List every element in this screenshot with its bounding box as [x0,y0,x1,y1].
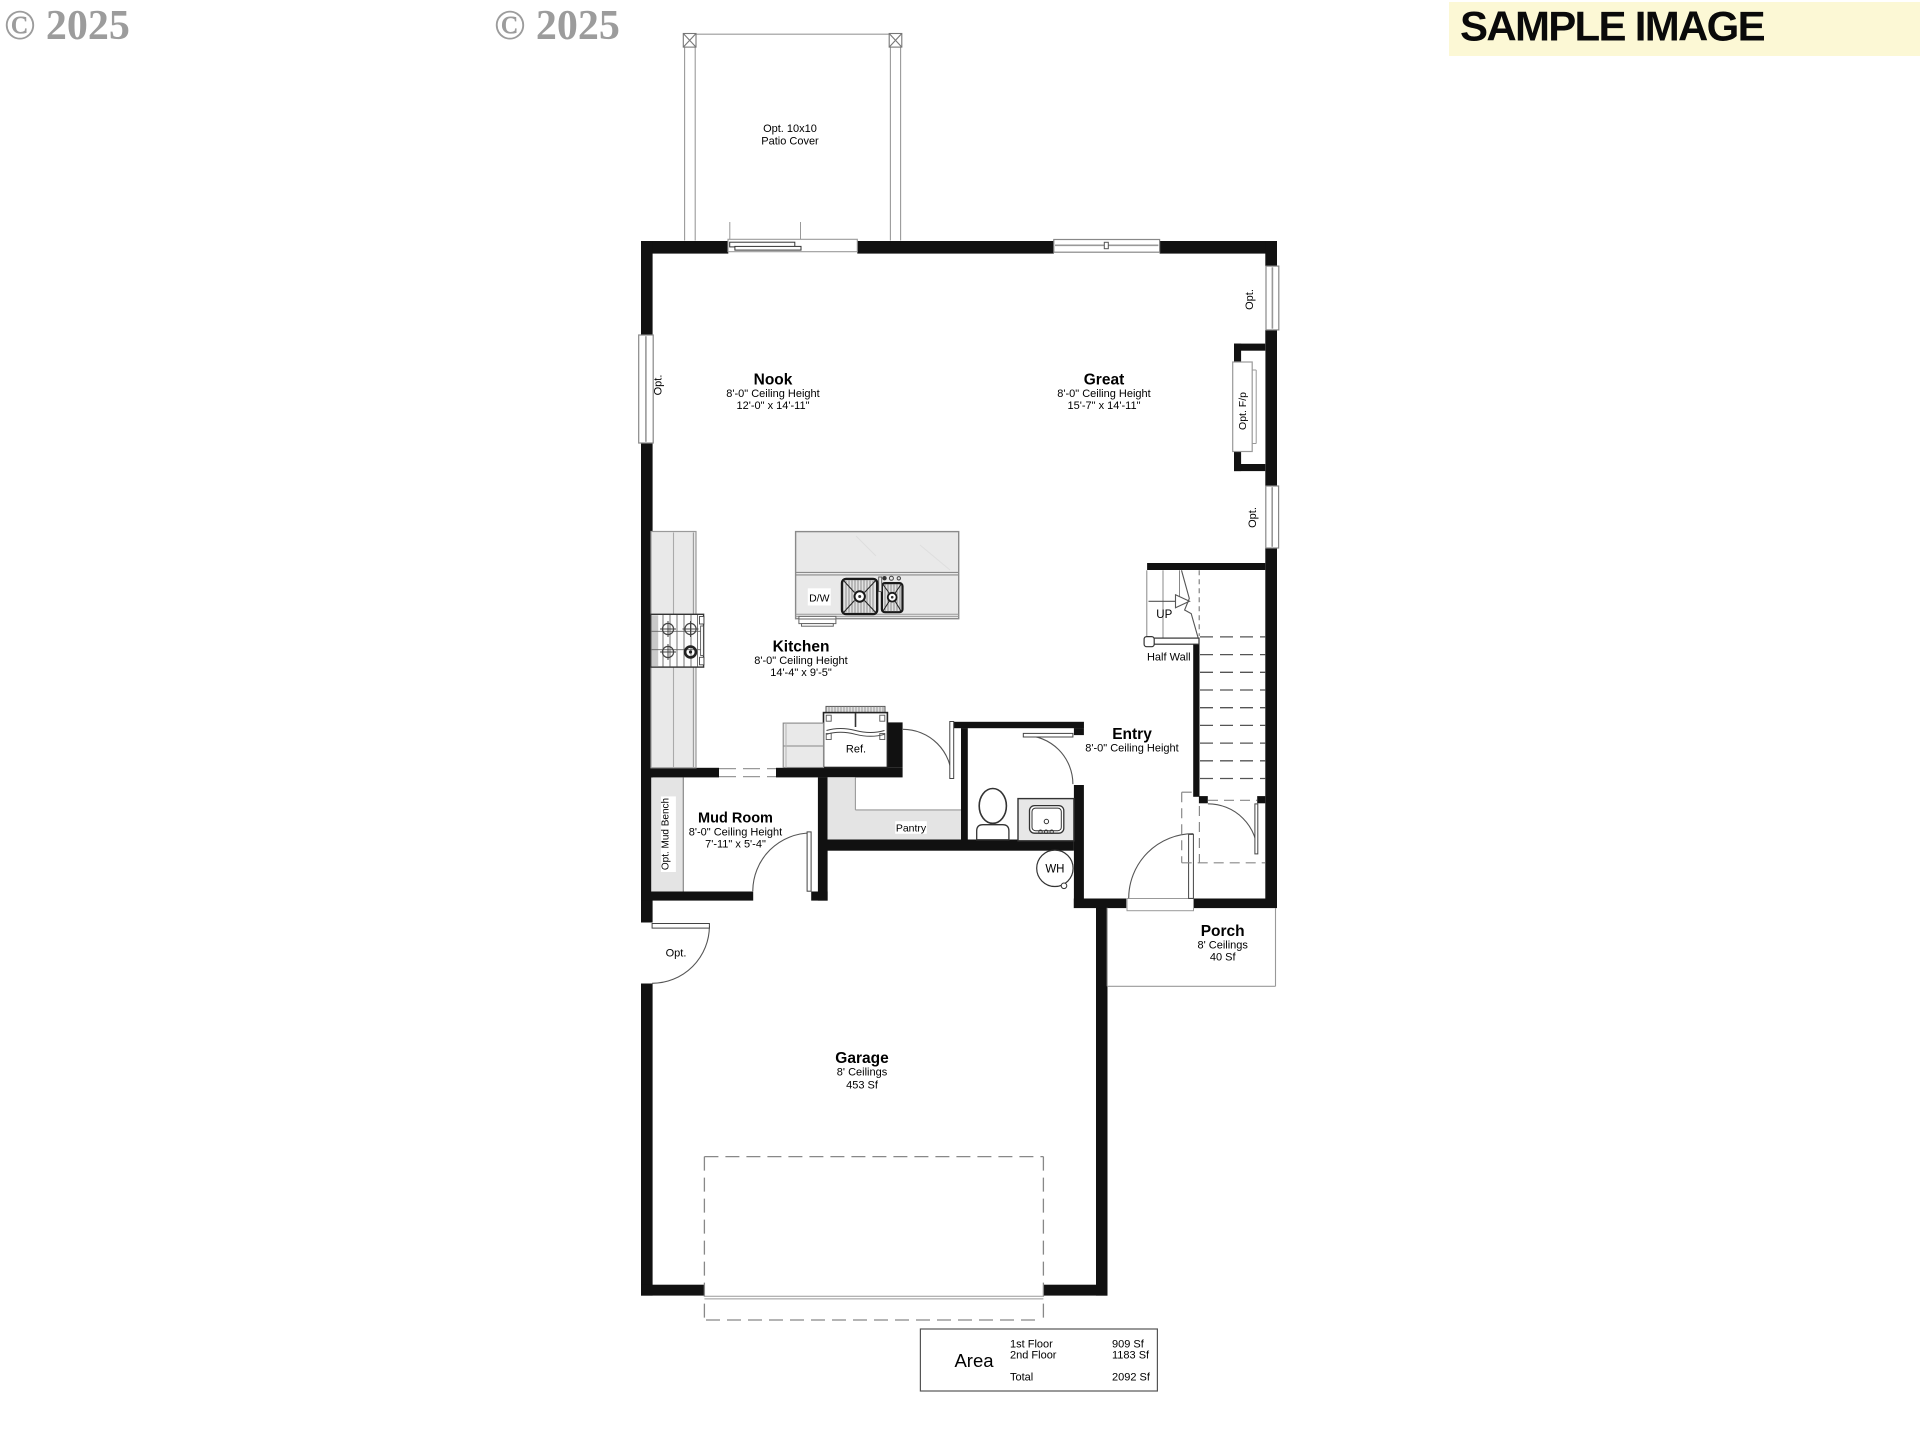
svg-text:Area: Area [954,1350,994,1371]
svg-text:8'-0" Ceiling Height: 8'-0" Ceiling Height [1085,743,1178,755]
svg-text:Opt. F/p: Opt. F/p [1237,392,1249,430]
svg-text:2nd Floor: 2nd Floor [1010,1350,1057,1362]
svg-text:Ref.: Ref. [846,744,866,756]
svg-text:8' Ceilings: 8' Ceilings [1197,940,1248,952]
svg-text:8'-0" Ceiling Height: 8'-0" Ceiling Height [726,388,819,400]
svg-text:Opt.: Opt. [666,948,687,960]
svg-text:1183 Sf: 1183 Sf [1112,1350,1150,1362]
svg-text:Opt. Mud Bench: Opt. Mud Bench [661,798,672,870]
svg-text:D/W: D/W [809,592,830,604]
svg-text:Patio Cover: Patio Cover [761,136,819,148]
svg-text:8' Ceilings: 8' Ceilings [837,1067,888,1079]
svg-text:7'-11" x 5'-4": 7'-11" x 5'-4" [705,839,766,851]
svg-text:Opt. 10x10: Opt. 10x10 [763,123,817,135]
svg-text:15'-7" x 14'-11": 15'-7" x 14'-11" [1068,400,1141,412]
svg-text:Total: Total [1010,1371,1033,1383]
svg-text:© 2025: © 2025 [494,3,620,49]
svg-text:Mud Room: Mud Room [698,811,773,827]
svg-text:Opt.: Opt. [1244,289,1256,310]
svg-text:12'-0" x 14'-11": 12'-0" x 14'-11" [737,400,810,412]
svg-text:WH: WH [1045,864,1064,876]
svg-text:Pantry: Pantry [896,823,927,835]
svg-text:Opt.: Opt. [1247,507,1259,528]
svg-text:Nook: Nook [754,372,793,389]
svg-text:Entry: Entry [1112,726,1152,743]
svg-text:40 Sf: 40 Sf [1210,952,1237,964]
svg-text:Half Wall: Half Wall [1147,652,1191,664]
svg-text:2092 Sf: 2092 Sf [1112,1371,1151,1383]
svg-text:Garage: Garage [835,1050,889,1067]
svg-text:© 2025: © 2025 [4,3,130,49]
svg-text:SAMPLE IMAGE: SAMPLE IMAGE [1460,3,1765,50]
svg-text:14'-4" x 9'-5": 14'-4" x 9'-5" [770,667,832,679]
svg-text:Opt.: Opt. [653,375,665,396]
svg-text:Porch: Porch [1201,923,1245,940]
svg-text:453 Sf: 453 Sf [846,1080,879,1092]
svg-text:8'-0" Ceiling Height: 8'-0" Ceiling Height [754,655,847,667]
svg-text:Great: Great [1084,372,1125,389]
svg-text:Kitchen: Kitchen [773,639,830,656]
svg-text:8'-0" Ceiling Height: 8'-0" Ceiling Height [1057,388,1150,400]
svg-text:8'-0" Ceiling Height: 8'-0" Ceiling Height [689,827,782,839]
svg-text:UP: UP [1156,609,1172,621]
